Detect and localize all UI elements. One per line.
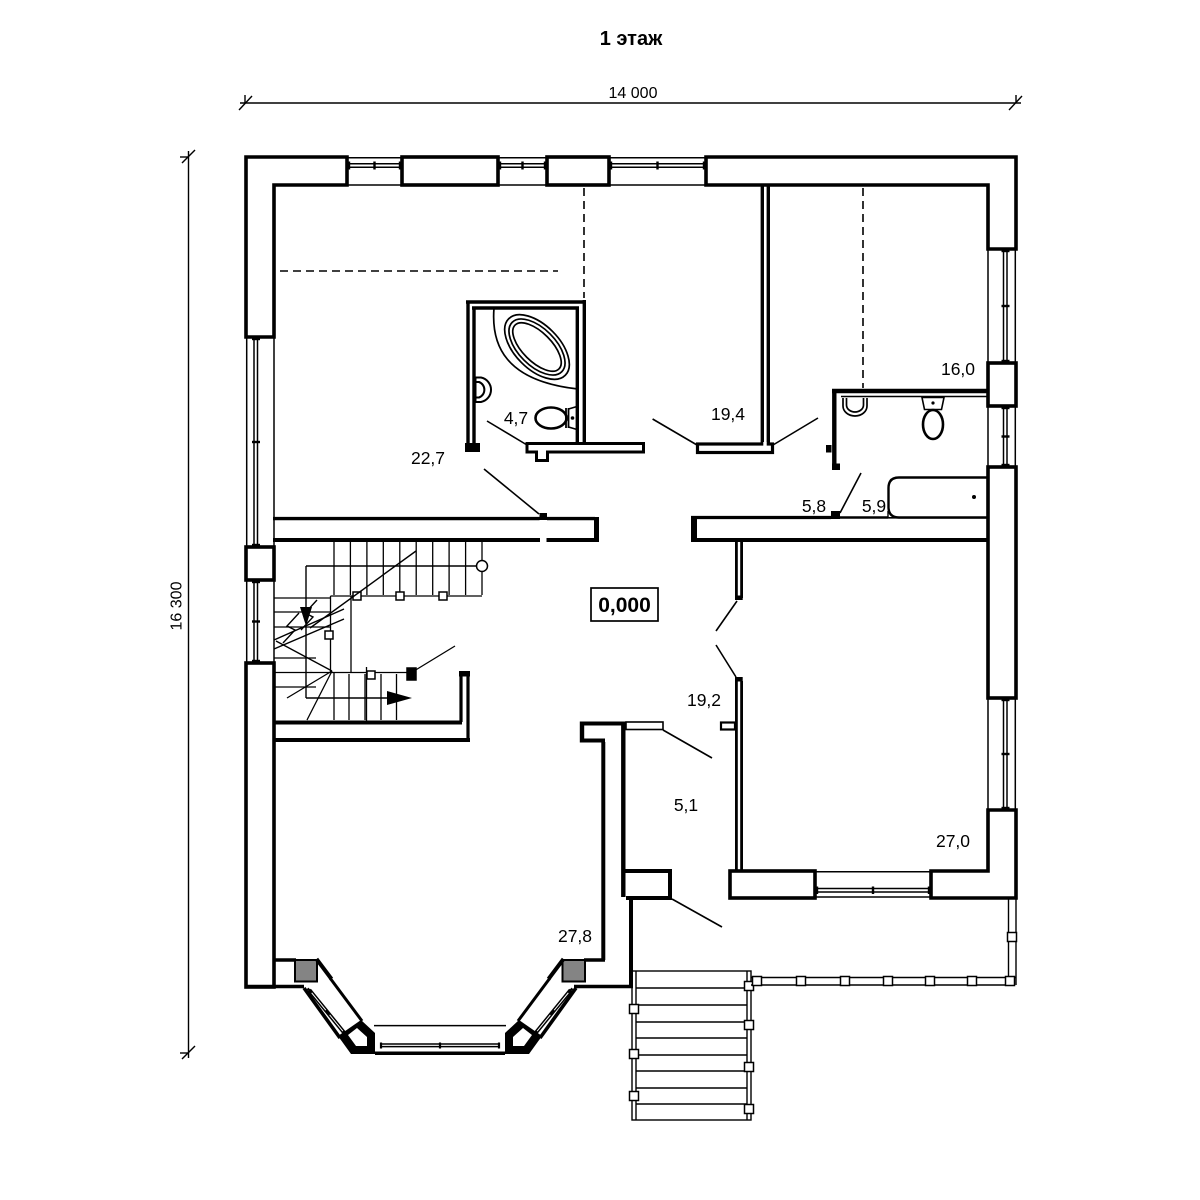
svg-text:4,7: 4,7 bbox=[504, 408, 528, 428]
svg-text:27,8: 27,8 bbox=[558, 926, 592, 946]
svg-text:22,7: 22,7 bbox=[411, 448, 445, 468]
svg-text:16,0: 16,0 bbox=[941, 359, 975, 379]
svg-text:5,8: 5,8 bbox=[802, 496, 826, 516]
svg-text:0,000: 0,000 bbox=[598, 594, 651, 617]
svg-text:1 этаж: 1 этаж bbox=[600, 28, 663, 50]
svg-text:16 300: 16 300 bbox=[169, 581, 186, 630]
svg-text:27,0: 27,0 bbox=[936, 831, 970, 851]
svg-text:19,4: 19,4 bbox=[711, 404, 745, 424]
svg-text:14 000: 14 000 bbox=[609, 85, 658, 102]
svg-text:5,1: 5,1 bbox=[674, 795, 698, 815]
svg-text:5,9: 5,9 bbox=[862, 496, 886, 516]
svg-text:19,2: 19,2 bbox=[687, 690, 721, 710]
